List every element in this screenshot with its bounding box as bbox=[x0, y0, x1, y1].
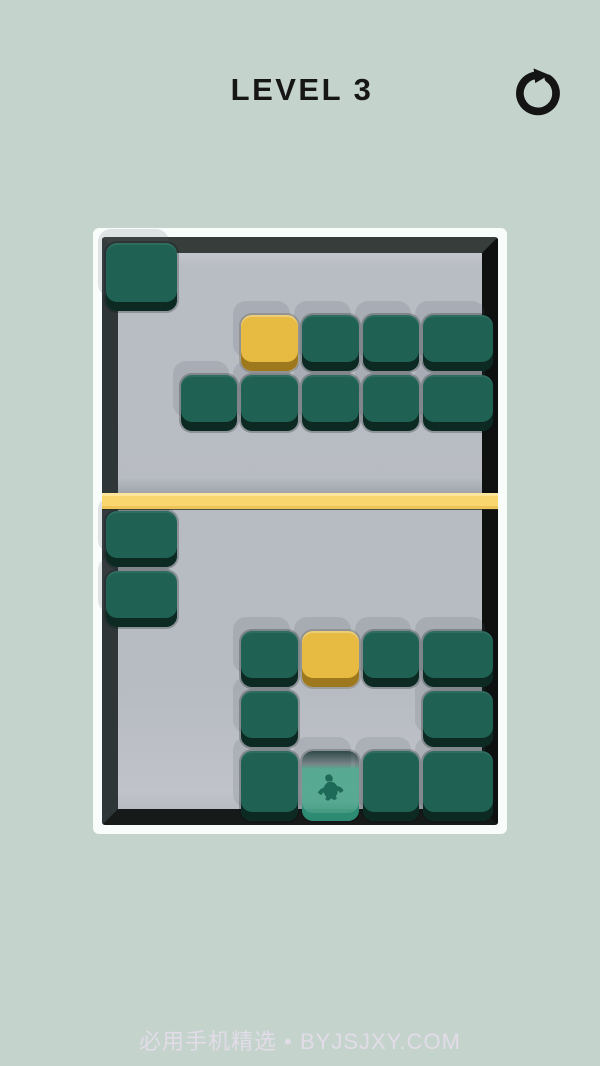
yellow-block[interactable] bbox=[302, 631, 359, 687]
green-block[interactable] bbox=[241, 375, 298, 431]
green-block[interactable] bbox=[181, 375, 238, 431]
green-block[interactable] bbox=[423, 375, 493, 431]
green-block[interactable] bbox=[106, 243, 177, 311]
yellow-block[interactable] bbox=[241, 315, 298, 371]
green-block[interactable] bbox=[423, 691, 493, 747]
green-block[interactable] bbox=[241, 751, 298, 821]
green-block[interactable] bbox=[363, 375, 420, 431]
board-section-top bbox=[118, 253, 482, 493]
restart-button[interactable] bbox=[508, 62, 568, 122]
green-block[interactable] bbox=[302, 375, 359, 431]
board-frame bbox=[102, 237, 498, 825]
green-block[interactable] bbox=[423, 631, 493, 687]
green-block[interactable] bbox=[302, 315, 359, 371]
divider-bar bbox=[102, 493, 498, 509]
creature-goal-block[interactable] bbox=[302, 751, 359, 821]
green-block[interactable] bbox=[241, 631, 298, 687]
green-block[interactable] bbox=[423, 315, 493, 371]
green-block[interactable] bbox=[423, 751, 493, 821]
board-section-bottom bbox=[118, 509, 482, 809]
game-board bbox=[93, 228, 507, 834]
watermark-text: 必用手机精选 • BYJSJXY.COM bbox=[0, 1024, 600, 1056]
green-block[interactable] bbox=[363, 315, 420, 371]
restart-icon bbox=[510, 63, 566, 119]
creature-icon bbox=[310, 768, 350, 808]
game-screen: LEVEL 3 必用手机精选 • BYJSJXY.COM bbox=[0, 0, 600, 1066]
green-block[interactable] bbox=[241, 691, 298, 747]
green-block[interactable] bbox=[363, 751, 420, 821]
green-block[interactable] bbox=[363, 631, 420, 687]
green-block[interactable] bbox=[106, 511, 177, 567]
green-block[interactable] bbox=[106, 571, 177, 627]
